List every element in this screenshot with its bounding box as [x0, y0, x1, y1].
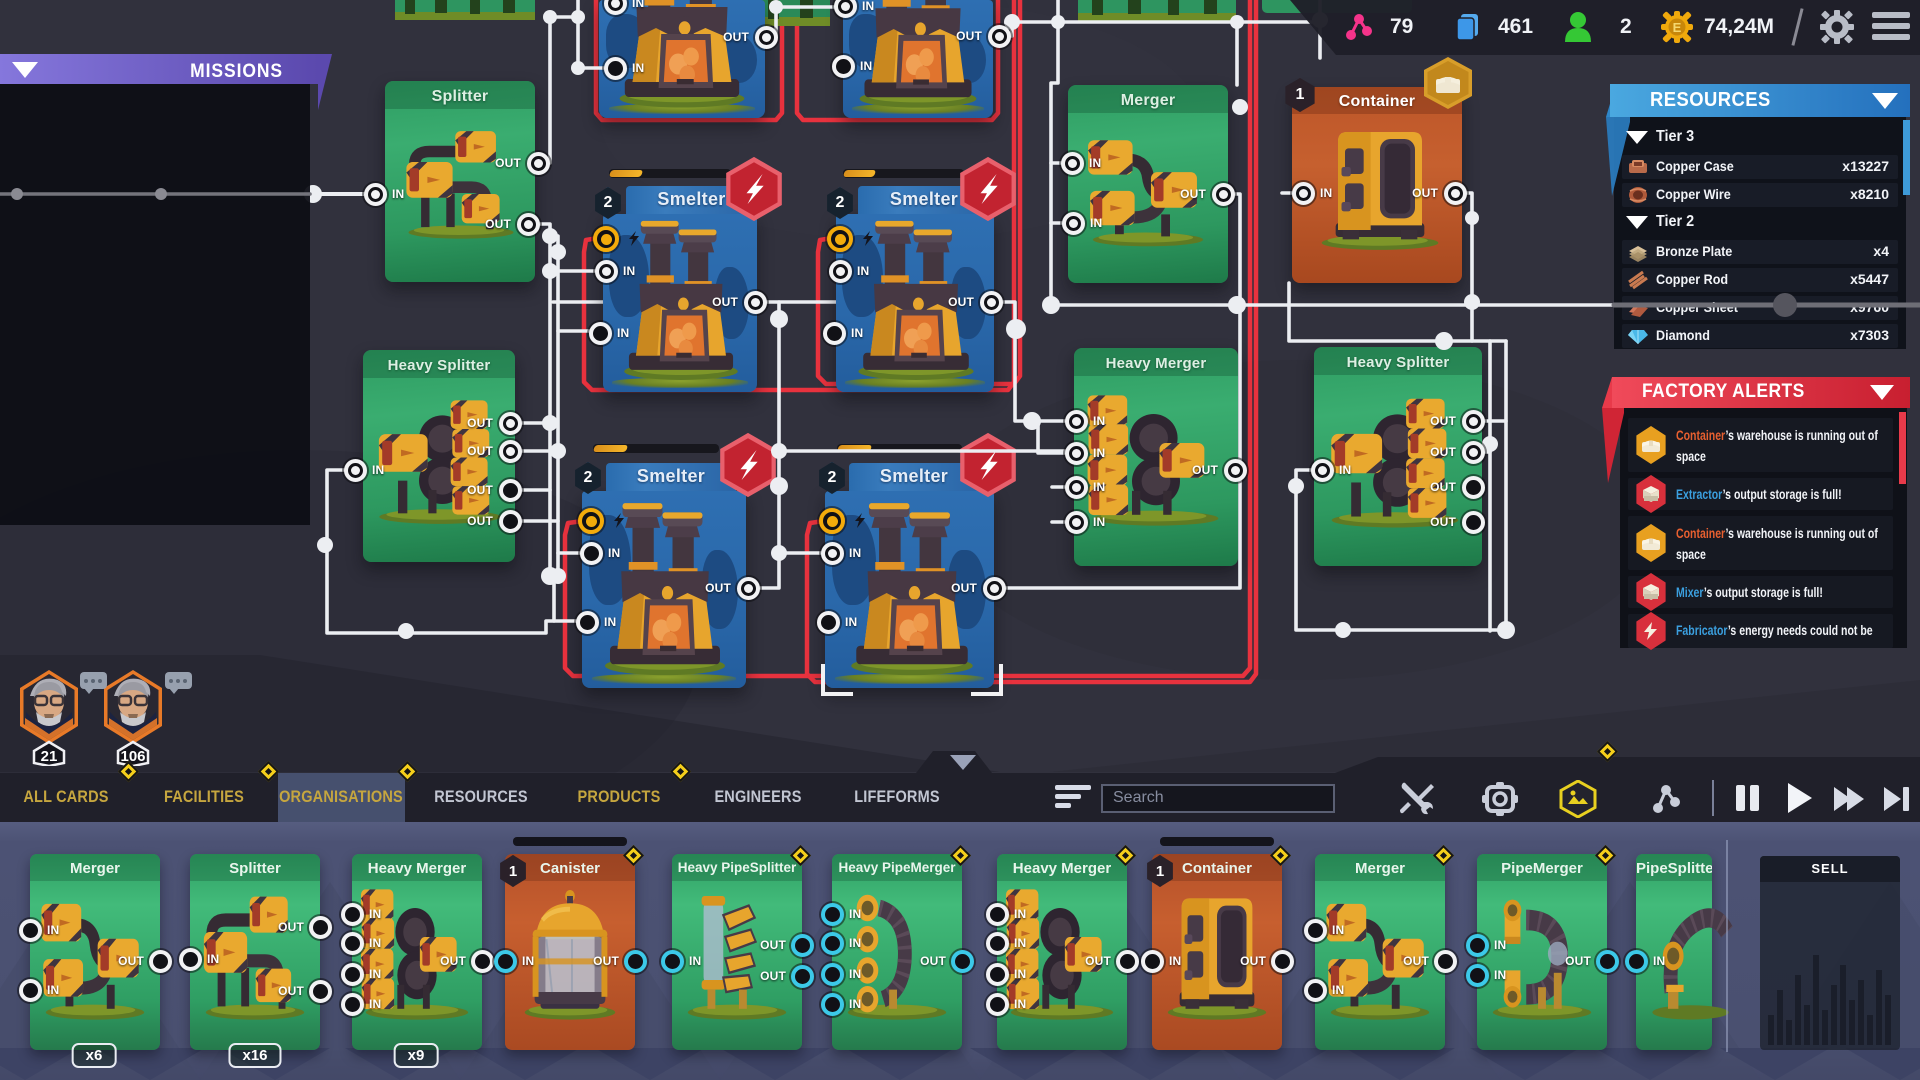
svg-text:106: 106: [120, 748, 145, 765]
svg-text:E: E: [1673, 20, 1682, 35]
svg-text:21: 21: [41, 748, 58, 765]
